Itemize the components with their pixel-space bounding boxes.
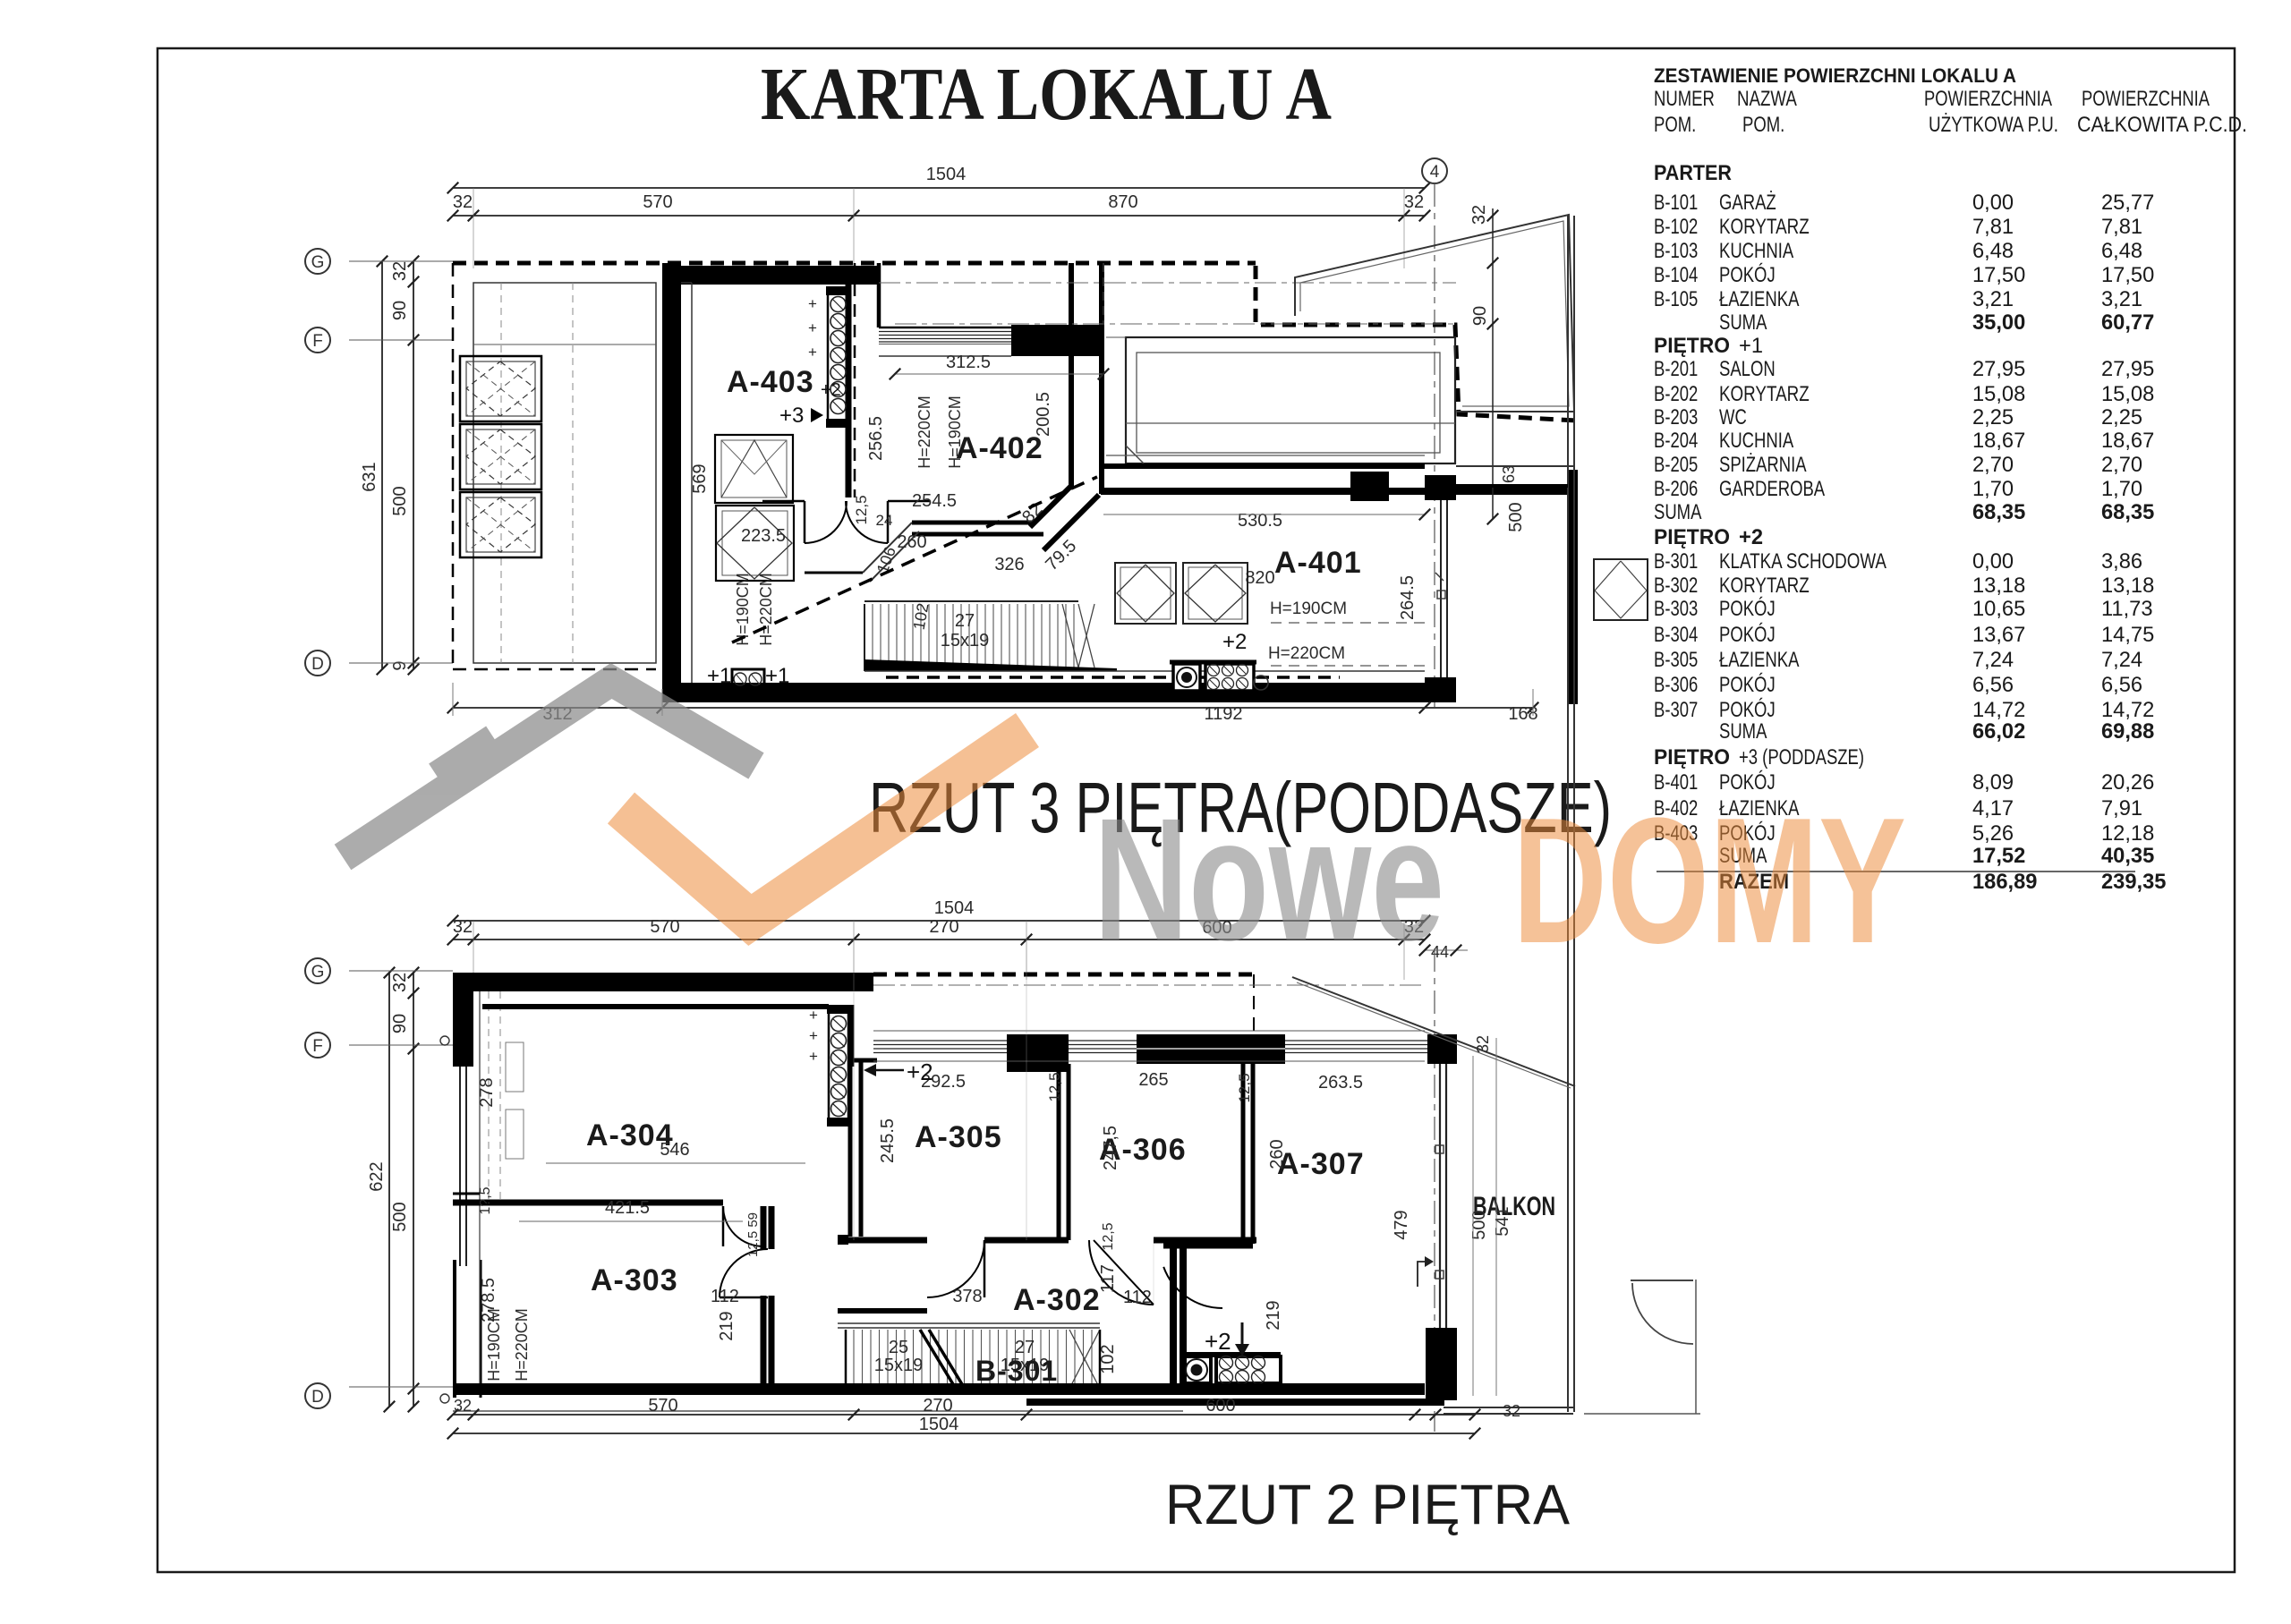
svg-text:DOMY: DOMY — [1512, 781, 1906, 981]
svg-text:8,09: 8,09 — [1972, 771, 2014, 795]
svg-text:SALON: SALON — [1719, 358, 1776, 381]
svg-text:RZUT 2 PIĘTRA: RZUT 2 PIĘTRA — [1165, 1474, 1571, 1536]
svg-text:A-302: A-302 — [1013, 1283, 1101, 1317]
svg-text:6,56: 6,56 — [1972, 674, 2014, 697]
svg-text:+: + — [809, 1048, 818, 1065]
svg-text:312.5: 312.5 — [946, 353, 991, 372]
svg-text:14,72: 14,72 — [1972, 699, 2025, 722]
svg-text:32: 32 — [453, 917, 473, 937]
svg-text:622: 622 — [367, 1161, 387, 1191]
svg-text:570: 570 — [648, 1396, 677, 1416]
svg-text:B-303: B-303 — [1654, 598, 1698, 621]
svg-text:A-402: A-402 — [956, 431, 1043, 465]
svg-text:500: 500 — [390, 486, 410, 515]
svg-text:6,48: 6,48 — [2101, 240, 2142, 263]
svg-text:SUMA: SUMA — [1719, 720, 1767, 744]
svg-text:90: 90 — [390, 301, 410, 320]
svg-text:500: 500 — [1506, 502, 1526, 531]
svg-text:KORYTARZ: KORYTARZ — [1719, 383, 1810, 406]
svg-text:3,21: 3,21 — [1972, 288, 2014, 311]
svg-text:112: 112 — [711, 1287, 739, 1306]
svg-text:PARTER: PARTER — [1654, 162, 1732, 185]
svg-text:820: 820 — [1245, 568, 1274, 588]
svg-text:B-101: B-101 — [1654, 191, 1698, 215]
svg-text:378: 378 — [952, 1287, 982, 1306]
svg-text:9: 9 — [390, 660, 410, 670]
svg-text:168: 168 — [1508, 704, 1537, 724]
svg-text:270: 270 — [929, 917, 958, 937]
svg-text:POKÓJ: POKÓJ — [1719, 698, 1776, 722]
svg-text:+1: +1 — [707, 664, 731, 688]
svg-text:ŁAZIENKA: ŁAZIENKA — [1719, 649, 1800, 672]
svg-text:+: + — [809, 1007, 818, 1024]
svg-text:569: 569 — [690, 463, 710, 493]
svg-text:25: 25 — [889, 1338, 908, 1357]
svg-text:32: 32 — [1469, 205, 1489, 225]
svg-text:+2: +2 — [1739, 526, 1763, 549]
svg-text:32: 32 — [454, 1397, 472, 1415]
svg-text:32: 32 — [390, 973, 410, 992]
svg-text:66,02: 66,02 — [1972, 720, 2025, 744]
svg-text:12,5: 12,5 — [853, 495, 870, 524]
svg-text:2,70: 2,70 — [1972, 454, 2014, 477]
svg-text:G: G — [311, 963, 325, 982]
svg-text:219: 219 — [1264, 1300, 1283, 1330]
svg-text:263.5: 263.5 — [1318, 1073, 1363, 1093]
svg-text:KORYTARZ: KORYTARZ — [1719, 574, 1810, 598]
svg-text:F: F — [312, 1037, 323, 1056]
svg-text:12,5: 12,5 — [1101, 1222, 1116, 1250]
svg-text:B-205: B-205 — [1654, 454, 1698, 477]
svg-text:+2: +2 — [1222, 630, 1247, 654]
svg-text:68,35: 68,35 — [1972, 501, 2025, 524]
svg-text:D: D — [311, 655, 324, 674]
svg-text:A-305: A-305 — [915, 1120, 1002, 1154]
svg-text:40,35: 40,35 — [2101, 845, 2154, 868]
svg-text:11,73: 11,73 — [2101, 598, 2153, 621]
svg-text:+: + — [808, 295, 817, 312]
svg-text:63: 63 — [1500, 465, 1518, 483]
svg-text:500: 500 — [390, 1202, 410, 1231]
svg-text:F: F — [312, 332, 323, 351]
svg-text:2,25: 2,25 — [1972, 406, 2014, 429]
svg-text:239,35: 239,35 — [2101, 871, 2166, 894]
svg-text:B-305: B-305 — [1654, 649, 1698, 672]
svg-text:6,48: 6,48 — [1972, 240, 2014, 263]
svg-text:0,00: 0,00 — [1972, 191, 2014, 215]
svg-text:32: 32 — [1503, 1402, 1520, 1420]
svg-text:H=220CM: H=220CM — [513, 1308, 531, 1382]
svg-text:530.5: 530.5 — [1238, 511, 1282, 531]
svg-text:1,70: 1,70 — [2101, 478, 2142, 501]
svg-text:SPIŻARNIA: SPIŻARNIA — [1719, 453, 1807, 477]
svg-text:12,5: 12,5 — [1046, 1072, 1063, 1101]
svg-text:+2: +2 — [821, 380, 841, 400]
svg-text:265: 265 — [1138, 1070, 1168, 1090]
svg-text:270: 270 — [923, 1396, 952, 1416]
svg-text:219: 219 — [717, 1311, 737, 1340]
svg-text:+: + — [808, 319, 817, 336]
svg-text:12,5: 12,5 — [1236, 1073, 1253, 1102]
svg-text:90: 90 — [1470, 306, 1490, 326]
svg-text:247,5: 247,5 — [1101, 1126, 1120, 1170]
svg-text:3,86: 3,86 — [2101, 550, 2142, 574]
svg-text:A-303: A-303 — [591, 1263, 678, 1297]
svg-text:2,25: 2,25 — [2101, 406, 2142, 429]
svg-text:SUMA: SUMA — [1719, 311, 1767, 335]
svg-text:POKÓJ: POKÓJ — [1719, 673, 1776, 697]
svg-text:GARAŻ: GARAŻ — [1719, 191, 1776, 215]
svg-text:ZESTAWIENIE POWIERZCHNI LOKALU: ZESTAWIENIE POWIERZCHNI LOKALU A — [1654, 64, 2016, 87]
svg-text:260: 260 — [1267, 1139, 1287, 1169]
svg-text:UŻYTKOWA P.U.: UŻYTKOWA P.U. — [1929, 113, 2058, 137]
svg-text:B-202: B-202 — [1654, 383, 1698, 406]
svg-text:POM.: POM. — [1742, 114, 1784, 137]
svg-text:5,26: 5,26 — [1972, 822, 2014, 846]
svg-text:POM.: POM. — [1654, 114, 1696, 137]
svg-text:+2: +2 — [907, 1059, 933, 1085]
svg-text:A-403: A-403 — [727, 365, 814, 399]
svg-text:POWIERZCHNIA: POWIERZCHNIA — [1924, 88, 2052, 111]
svg-text:12,5 59: 12,5 59 — [745, 1212, 761, 1257]
svg-text:GARDEROBA: GARDEROBA — [1719, 478, 1825, 501]
svg-text:+3: +3 — [779, 404, 804, 428]
svg-text:14,72: 14,72 — [2101, 699, 2154, 722]
svg-text:7,24: 7,24 — [1972, 649, 2014, 672]
svg-text:223.5: 223.5 — [741, 526, 786, 546]
svg-text:102: 102 — [1098, 1344, 1118, 1373]
svg-text:200.5: 200.5 — [1034, 392, 1053, 437]
svg-text:112: 112 — [1123, 1288, 1152, 1307]
svg-text:570: 570 — [650, 917, 679, 937]
svg-text:68,35: 68,35 — [2101, 501, 2154, 524]
svg-text:B-301: B-301 — [1654, 550, 1698, 574]
svg-text:B-201: B-201 — [1654, 358, 1698, 381]
svg-text:10,65: 10,65 — [1972, 598, 2025, 621]
svg-text:4: 4 — [1430, 163, 1440, 182]
svg-text:27: 27 — [955, 611, 975, 631]
svg-text:B-307: B-307 — [1654, 699, 1698, 722]
svg-text:245.5: 245.5 — [878, 1118, 898, 1163]
svg-text:260: 260 — [897, 532, 926, 552]
svg-text:H=190CM: H=190CM — [734, 573, 752, 646]
svg-text:3,21: 3,21 — [2101, 288, 2142, 311]
svg-text:H=220CM: H=220CM — [1268, 644, 1345, 663]
svg-text:PIĘTRO: PIĘTRO — [1654, 526, 1730, 549]
svg-text:POKÓJ: POKÓJ — [1719, 597, 1776, 621]
svg-text:B-105: B-105 — [1654, 288, 1698, 311]
svg-text:7,81: 7,81 — [1972, 216, 2014, 239]
svg-text:1,70: 1,70 — [1972, 478, 2014, 501]
svg-text:+1: +1 — [765, 664, 789, 688]
svg-text:32: 32 — [1404, 192, 1424, 212]
svg-text:32: 32 — [390, 261, 410, 281]
svg-text:18,67: 18,67 — [2101, 429, 2154, 453]
svg-text:421.5: 421.5 — [605, 1198, 650, 1218]
svg-text:20,26: 20,26 — [2101, 771, 2154, 795]
svg-text:17,50: 17,50 — [2101, 264, 2154, 287]
svg-text:27,95: 27,95 — [1972, 358, 2025, 381]
svg-text:24: 24 — [876, 512, 893, 529]
svg-text:14,75: 14,75 — [2101, 624, 2154, 647]
svg-text:KORYTARZ: KORYTARZ — [1719, 216, 1810, 239]
svg-text:15x19: 15x19 — [941, 631, 990, 650]
svg-text:254.5: 254.5 — [912, 491, 957, 511]
svg-text:KUCHNIA: KUCHNIA — [1719, 429, 1793, 453]
svg-text:B-306: B-306 — [1654, 674, 1698, 697]
svg-text:KUCHNIA: KUCHNIA — [1719, 240, 1793, 263]
svg-text:256.5: 256.5 — [866, 416, 886, 461]
svg-text:4,17: 4,17 — [1972, 797, 2014, 821]
svg-text:7,81: 7,81 — [2101, 216, 2142, 239]
svg-text:6,56: 6,56 — [2101, 674, 2142, 697]
svg-text:1192: 1192 — [1204, 704, 1242, 724]
svg-text:870: 870 — [1108, 192, 1137, 212]
svg-text:15,08: 15,08 — [2101, 383, 2154, 406]
svg-text:264.5: 264.5 — [1398, 575, 1418, 620]
svg-text:117: 117 — [1098, 1264, 1118, 1293]
svg-text:35,00: 35,00 — [1972, 311, 2025, 335]
svg-text:60,77: 60,77 — [2101, 311, 2154, 335]
svg-text:+2: +2 — [1205, 1328, 1231, 1355]
svg-text:NAZWA: NAZWA — [1737, 88, 1797, 111]
svg-text:18,67: 18,67 — [1972, 429, 2025, 453]
svg-text:B-104: B-104 — [1654, 264, 1698, 287]
svg-text:2,70: 2,70 — [2101, 454, 2142, 477]
svg-text:326: 326 — [994, 555, 1024, 574]
svg-text:32: 32 — [1474, 1035, 1492, 1053]
svg-text:1504: 1504 — [919, 1415, 959, 1434]
svg-text:KLATKA SCHODOWA: KLATKA SCHODOWA — [1719, 550, 1886, 574]
svg-text:15x19: 15x19 — [874, 1356, 924, 1375]
svg-text:69,88: 69,88 — [2101, 720, 2154, 744]
svg-text:186,89: 186,89 — [1972, 871, 2037, 894]
svg-text:13,18: 13,18 — [2101, 574, 2154, 598]
svg-text:570: 570 — [643, 192, 672, 212]
svg-text:H=190CM: H=190CM — [1270, 599, 1347, 618]
svg-text:B-301: B-301 — [975, 1355, 1058, 1387]
svg-text:B-103: B-103 — [1654, 240, 1698, 263]
svg-text:B-206: B-206 — [1654, 478, 1698, 501]
svg-text:B-304: B-304 — [1654, 624, 1698, 647]
svg-text:PIĘTRO: PIĘTRO — [1654, 746, 1730, 769]
svg-text:278: 278 — [477, 1077, 497, 1107]
svg-text:ŁAZIENKA: ŁAZIENKA — [1719, 288, 1800, 311]
svg-text:A-307: A-307 — [1277, 1147, 1365, 1181]
svg-text:KARTA LOKALU A: KARTA LOKALU A — [761, 53, 1332, 136]
svg-text:90: 90 — [390, 1014, 410, 1033]
svg-text:PIĘTRO: PIĘTRO — [1654, 335, 1730, 358]
svg-text:13,67: 13,67 — [1972, 624, 2025, 647]
svg-text:15,08: 15,08 — [1972, 383, 2025, 406]
svg-text:Nowe: Nowe — [1094, 782, 1444, 977]
svg-text:POWIERZCHNIA: POWIERZCHNIA — [2082, 88, 2210, 111]
svg-text:17,52: 17,52 — [1972, 845, 2025, 868]
svg-text:0,00: 0,00 — [1972, 550, 2014, 574]
svg-text:CAŁKOWITA P.C.D.: CAŁKOWITA P.C.D. — [2077, 114, 2247, 137]
svg-text:WC: WC — [1719, 406, 1747, 429]
svg-text:7,91: 7,91 — [2101, 797, 2142, 821]
svg-text:27,95: 27,95 — [2101, 358, 2154, 381]
svg-text:+: + — [808, 344, 817, 361]
svg-text:631: 631 — [360, 462, 379, 491]
svg-text:H=190CM: H=190CM — [485, 1308, 503, 1382]
svg-text:+3 (PODDASZE): +3 (PODDASZE) — [1739, 746, 1864, 769]
svg-text:D: D — [311, 1388, 324, 1407]
svg-text:G: G — [311, 253, 325, 272]
svg-text:NUMER: NUMER — [1654, 88, 1715, 111]
svg-text:479: 479 — [1392, 1210, 1411, 1239]
svg-text:B-102: B-102 — [1654, 216, 1698, 239]
svg-text:POKÓJ: POKÓJ — [1719, 623, 1776, 647]
svg-text:A-401: A-401 — [1274, 546, 1362, 580]
svg-text:H=220CM: H=220CM — [916, 395, 933, 469]
svg-text:13,18: 13,18 — [1972, 574, 2025, 598]
svg-text:+: + — [809, 1027, 818, 1044]
svg-text:541: 541 — [1493, 1206, 1512, 1236]
svg-text:H=190CM: H=190CM — [946, 395, 964, 469]
svg-text:SUMA: SUMA — [1654, 501, 1702, 524]
svg-text:B-203: B-203 — [1654, 406, 1698, 429]
svg-text:1504: 1504 — [934, 898, 975, 918]
svg-text:17,50: 17,50 — [1972, 264, 2025, 287]
svg-text:B-204: B-204 — [1654, 429, 1698, 453]
svg-text:1504: 1504 — [926, 165, 967, 184]
svg-text:1?,5: 1?,5 — [478, 1186, 493, 1214]
svg-text:H=220CM: H=220CM — [757, 573, 775, 646]
svg-text:25,77: 25,77 — [2101, 191, 2154, 215]
svg-text:12,18: 12,18 — [2101, 822, 2154, 846]
svg-text:500: 500 — [1469, 1210, 1489, 1239]
svg-text:+1: +1 — [1739, 335, 1763, 358]
svg-text:546: 546 — [660, 1140, 689, 1160]
svg-text:B-302: B-302 — [1654, 574, 1698, 598]
svg-text:600: 600 — [1205, 1396, 1235, 1416]
svg-text:32: 32 — [453, 192, 473, 212]
svg-text:POKÓJ: POKÓJ — [1719, 263, 1776, 287]
svg-text:7,24: 7,24 — [2101, 649, 2142, 672]
